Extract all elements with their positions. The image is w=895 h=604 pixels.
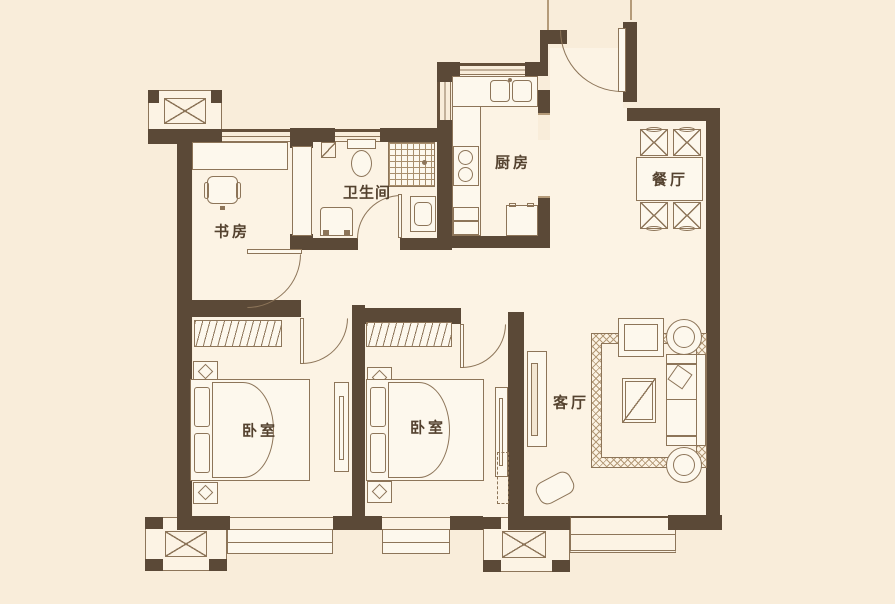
wall-bottom [333, 516, 382, 530]
wall-closet-cap [290, 128, 313, 148]
sofa-seat-divider [667, 399, 696, 400]
wall-kitchen-bottom [450, 236, 550, 248]
kitchen-top-window [458, 63, 527, 75]
floor-plan: 书房 卫生间 厨房 餐厅 卧室 卧室 客厅 [0, 0, 895, 604]
kitchen-doorway-jamb [538, 196, 550, 198]
dining-chair-back [641, 130, 667, 155]
shaft-corner [148, 90, 159, 103]
wall-bottom [178, 516, 230, 530]
armchair-cushion [624, 324, 658, 351]
kitchen-doorway-jamb [538, 113, 550, 115]
study-window [218, 129, 290, 142]
bedroom1-wardrobe [194, 320, 282, 347]
fridge-handle [509, 203, 516, 207]
dining-chair-back [674, 130, 700, 155]
kitchen-faucet [508, 78, 512, 82]
stove-burner [458, 167, 473, 182]
mop-basin [321, 142, 336, 158]
wall-bottom-right-corner [668, 515, 722, 530]
wall-kitchen-top-corner [437, 62, 460, 76]
wall-top [380, 128, 438, 142]
room-label-kitchen: 厨房 [495, 152, 531, 173]
side-table-lamp [673, 326, 695, 348]
dining-chair-cap [646, 226, 662, 231]
kitchen-sink-basin [490, 80, 510, 102]
living-room-window [570, 516, 676, 553]
wall-right-outer [706, 108, 720, 515]
sofa-arm [666, 354, 697, 364]
toilet-tank [347, 139, 376, 149]
wall-bathroom-bottom [306, 238, 358, 250]
wall-bathroom-bottom [400, 238, 452, 250]
shaft-corner [483, 517, 501, 529]
fridge [506, 205, 538, 236]
kitchen-drawer [453, 221, 479, 235]
shaft-corner [483, 560, 501, 572]
shaft-corner [211, 90, 222, 103]
sofa-arm [666, 436, 697, 446]
room-label-study: 书房 [214, 221, 250, 242]
entry-door-leaf [618, 28, 626, 92]
study-chair-base [220, 206, 225, 210]
bedroom2-sliding-unit [497, 452, 509, 504]
dining-chair-cap [679, 226, 695, 231]
study-desk [192, 142, 288, 170]
shaft-top-left-xbox [164, 98, 206, 124]
wall-bottom [450, 516, 483, 530]
wall-extension-tick [630, 0, 632, 20]
coffee-table-inner [625, 381, 653, 420]
fridge-handle [527, 203, 534, 207]
wall-bedroom2-right [508, 312, 524, 518]
wall-kitchen-left [437, 120, 452, 248]
wall-closet-cap [290, 234, 313, 250]
vanity-basin [414, 202, 432, 226]
wall-kitchen-right [538, 90, 550, 115]
room-label-bathroom: 卫生间 [343, 182, 391, 203]
stove-burner [458, 150, 473, 165]
bedroom2-door-leaf [460, 324, 464, 368]
hall-closet [292, 146, 312, 236]
dining-chair-cap [679, 127, 695, 132]
dining-chair-cap [646, 127, 662, 132]
bedroom1-bay-window [227, 529, 333, 554]
bedroom2-wardrobe [366, 322, 452, 347]
room-label-living: 客厅 [553, 392, 589, 413]
bedroom1-tv [339, 396, 344, 460]
wall-extension-tick [547, 0, 549, 30]
toilet-bowl [351, 150, 372, 177]
study-chair-arm [236, 182, 241, 199]
sofa-back [696, 354, 706, 446]
shower [388, 142, 435, 187]
side-table-lamp [673, 454, 695, 476]
study-chair-arm [204, 182, 209, 199]
bed-pillow [370, 387, 386, 427]
dining-chair-back [674, 203, 700, 228]
bedroom2-bay-window [382, 529, 450, 554]
room-label-dining: 餐厅 [652, 169, 688, 190]
room-label-bedroom2: 卧室 [410, 417, 446, 438]
room-label-bedroom1: 卧室 [242, 420, 278, 441]
shaft-corner [145, 559, 163, 571]
study-chair [207, 176, 238, 204]
shaft-corner [145, 517, 163, 529]
bed-pillow [370, 433, 386, 473]
shaft-corner [552, 560, 570, 572]
shower-head [422, 160, 427, 165]
wall-bottom [508, 516, 570, 530]
bedroom1-door-leaf [300, 318, 304, 364]
shaft-corner [209, 559, 227, 571]
wall-bedroom1-top [178, 300, 301, 317]
kitchen-left-window [437, 80, 451, 122]
wall-bedroom-divider [352, 305, 365, 516]
living-tv [531, 363, 538, 436]
wall-dining-top [627, 108, 707, 121]
shaft-bottom-center-xbox [502, 531, 546, 558]
kitchen-drawer [453, 207, 479, 221]
bed-pillow [194, 433, 210, 473]
washing-machine-foot [323, 230, 329, 235]
dining-chair-back [641, 203, 667, 228]
bed-pillow [194, 387, 210, 427]
bathroom-door-leaf [398, 194, 402, 238]
washing-machine-foot [344, 230, 350, 235]
shaft-bottom-left-xbox [165, 531, 207, 557]
study-door-leaf [247, 249, 302, 254]
kitchen-sink-basin [512, 80, 532, 102]
